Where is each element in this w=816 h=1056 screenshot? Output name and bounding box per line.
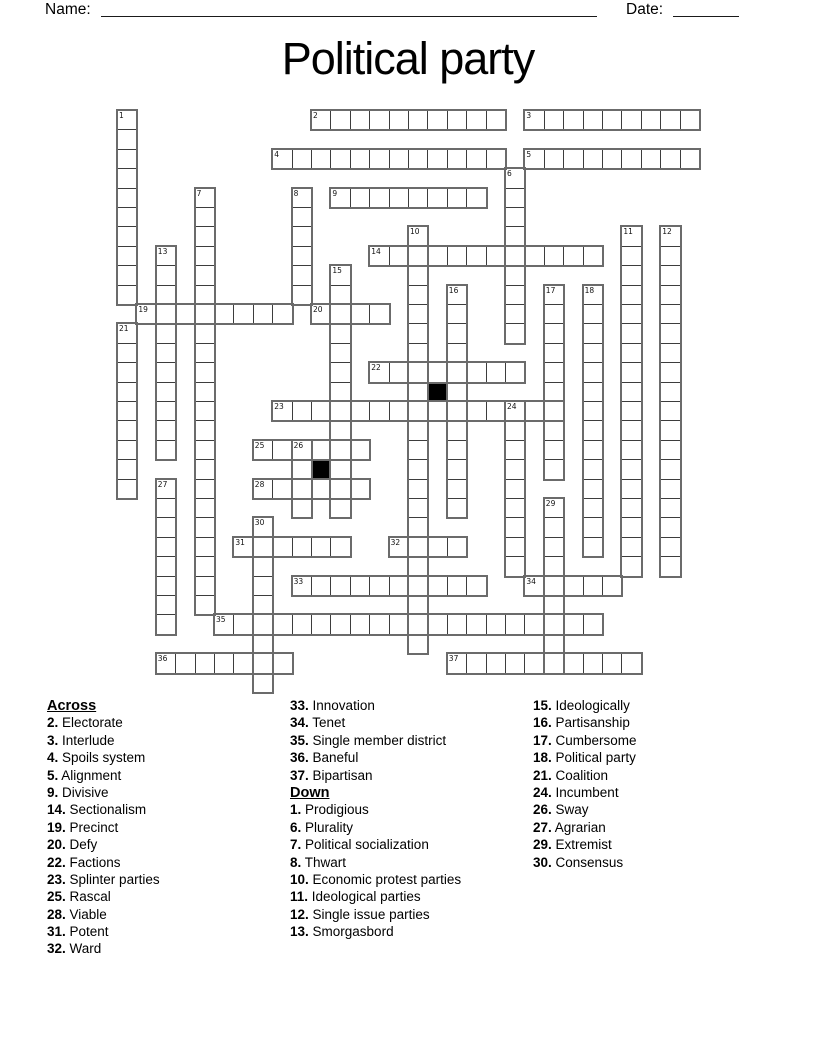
grid-cell[interactable] xyxy=(505,653,525,673)
grid-cell[interactable] xyxy=(408,479,428,499)
grid-cell[interactable] xyxy=(253,673,273,693)
grid-cell[interactable] xyxy=(660,265,680,285)
grid-cell[interactable] xyxy=(544,576,564,596)
grid-cell[interactable] xyxy=(660,149,680,169)
grid-cell[interactable] xyxy=(621,401,641,421)
grid-cell[interactable] xyxy=(350,479,370,499)
grid-cell[interactable] xyxy=(408,149,428,169)
grid-cell[interactable] xyxy=(195,556,215,576)
grid-cell[interactable] xyxy=(156,401,176,421)
grid-cell[interactable] xyxy=(292,265,312,285)
grid-cell[interactable] xyxy=(505,614,525,634)
grid-cell[interactable] xyxy=(292,149,312,169)
grid-cell[interactable] xyxy=(350,576,370,596)
grid-cell[interactable] xyxy=(195,343,215,363)
grid-cell[interactable] xyxy=(369,110,389,130)
grid-cell[interactable] xyxy=(292,246,312,266)
grid-cell[interactable] xyxy=(330,401,350,421)
grid-cell[interactable] xyxy=(195,401,215,421)
grid-cell[interactable] xyxy=(369,576,389,596)
grid-cell[interactable] xyxy=(195,595,215,615)
grid-cell[interactable] xyxy=(621,382,641,402)
grid-cell[interactable] xyxy=(660,537,680,557)
grid-cell[interactable] xyxy=(621,246,641,266)
grid-cell[interactable] xyxy=(486,401,506,421)
grid-cell[interactable] xyxy=(408,459,428,479)
grid-cell[interactable] xyxy=(292,498,312,518)
grid-cell[interactable] xyxy=(505,285,525,305)
grid-cell[interactable] xyxy=(447,459,467,479)
grid-cell[interactable] xyxy=(427,614,447,634)
grid-cell[interactable] xyxy=(544,149,564,169)
grid-cell[interactable] xyxy=(660,285,680,305)
grid-cell[interactable] xyxy=(408,634,428,654)
grid-cell[interactable] xyxy=(486,362,506,382)
grid-cell[interactable] xyxy=(369,401,389,421)
grid-cell[interactable] xyxy=(621,556,641,576)
grid-cell[interactable] xyxy=(272,614,292,634)
grid-cell[interactable] xyxy=(330,110,350,130)
grid-cell[interactable] xyxy=(117,285,137,305)
grid-cell[interactable] xyxy=(544,110,564,130)
grid-cell[interactable] xyxy=(330,459,350,479)
grid-cell[interactable] xyxy=(466,576,486,596)
grid-cell[interactable] xyxy=(117,207,137,227)
grid-cell[interactable] xyxy=(544,517,564,537)
grid-cell[interactable] xyxy=(408,595,428,615)
grid-cell[interactable] xyxy=(621,420,641,440)
grid-cell[interactable] xyxy=(466,246,486,266)
grid-cell[interactable] xyxy=(292,285,312,305)
grid-cell[interactable] xyxy=(505,207,525,227)
grid-cell[interactable] xyxy=(195,440,215,460)
grid-cell[interactable] xyxy=(350,614,370,634)
grid-cell[interactable] xyxy=(660,517,680,537)
grid-cell[interactable] xyxy=(311,401,331,421)
grid-cell[interactable] xyxy=(214,304,234,324)
grid-cell[interactable] xyxy=(330,285,350,305)
grid-cell[interactable] xyxy=(486,614,506,634)
grid-cell[interactable] xyxy=(466,614,486,634)
grid-cell[interactable] xyxy=(602,576,622,596)
grid-cell[interactable] xyxy=(117,479,137,499)
grid-cell[interactable] xyxy=(427,188,447,208)
grid-cell[interactable] xyxy=(524,614,544,634)
grid-cell[interactable] xyxy=(389,401,409,421)
grid-cell[interactable] xyxy=(505,246,525,266)
grid-cell[interactable] xyxy=(408,498,428,518)
grid-cell[interactable] xyxy=(408,614,428,634)
grid-cell[interactable] xyxy=(621,343,641,363)
grid-cell[interactable] xyxy=(292,479,312,499)
grid-cell[interactable] xyxy=(544,246,564,266)
grid-cell[interactable] xyxy=(544,459,564,479)
grid-cell[interactable] xyxy=(156,323,176,343)
grid-cell[interactable] xyxy=(447,188,467,208)
grid-cell[interactable] xyxy=(369,149,389,169)
grid-cell[interactable] xyxy=(447,440,467,460)
grid-cell[interactable] xyxy=(427,537,447,557)
grid-cell[interactable] xyxy=(583,304,603,324)
grid-cell[interactable] xyxy=(427,246,447,266)
grid-cell[interactable] xyxy=(621,479,641,499)
grid-cell[interactable] xyxy=(330,537,350,557)
grid-cell[interactable] xyxy=(330,304,350,324)
grid-cell[interactable] xyxy=(117,265,137,285)
grid-cell[interactable] xyxy=(195,226,215,246)
grid-cell[interactable] xyxy=(330,614,350,634)
grid-cell[interactable] xyxy=(583,149,603,169)
grid-cell[interactable] xyxy=(621,323,641,343)
grid-cell[interactable] xyxy=(195,498,215,518)
grid-cell[interactable] xyxy=(621,653,641,673)
grid-cell[interactable] xyxy=(505,537,525,557)
grid-cell[interactable] xyxy=(311,440,331,460)
grid-cell[interactable] xyxy=(233,653,253,673)
grid-cell[interactable] xyxy=(544,537,564,557)
grid-cell[interactable] xyxy=(583,653,603,673)
grid-cell[interactable] xyxy=(466,149,486,169)
grid-cell[interactable] xyxy=(330,479,350,499)
grid-cell[interactable] xyxy=(544,614,564,634)
grid-cell[interactable] xyxy=(660,382,680,402)
grid-cell[interactable] xyxy=(544,362,564,382)
grid-cell[interactable] xyxy=(583,479,603,499)
grid-cell[interactable] xyxy=(156,614,176,634)
grid-cell[interactable] xyxy=(195,323,215,343)
grid-cell[interactable] xyxy=(408,265,428,285)
grid-cell[interactable] xyxy=(330,440,350,460)
grid-cell[interactable] xyxy=(350,110,370,130)
grid-cell[interactable] xyxy=(156,556,176,576)
grid-cell[interactable] xyxy=(583,382,603,402)
grid-cell[interactable] xyxy=(195,537,215,557)
grid-cell[interactable] xyxy=(660,323,680,343)
grid-cell[interactable] xyxy=(350,401,370,421)
grid-cell[interactable] xyxy=(505,226,525,246)
grid-cell[interactable] xyxy=(544,304,564,324)
grid-cell[interactable] xyxy=(195,576,215,596)
grid-cell[interactable] xyxy=(583,614,603,634)
grid-cell[interactable] xyxy=(505,459,525,479)
grid-cell[interactable] xyxy=(544,343,564,363)
grid-cell[interactable] xyxy=(253,634,273,654)
grid-cell[interactable] xyxy=(641,110,661,130)
grid-cell[interactable] xyxy=(563,110,583,130)
grid-cell[interactable] xyxy=(156,382,176,402)
grid-cell[interactable] xyxy=(505,479,525,499)
grid-cell[interactable] xyxy=(117,362,137,382)
grid-cell[interactable] xyxy=(117,168,137,188)
grid-cell[interactable] xyxy=(447,479,467,499)
grid-cell[interactable] xyxy=(583,110,603,130)
grid-cell[interactable] xyxy=(621,110,641,130)
grid-cell[interactable] xyxy=(408,362,428,382)
grid-cell[interactable] xyxy=(563,246,583,266)
grid-cell[interactable] xyxy=(156,343,176,363)
grid-cell[interactable] xyxy=(195,362,215,382)
grid-cell[interactable] xyxy=(524,401,544,421)
grid-cell[interactable] xyxy=(486,246,506,266)
grid-cell[interactable] xyxy=(117,343,137,363)
grid-cell[interactable] xyxy=(330,498,350,518)
grid-cell[interactable] xyxy=(408,304,428,324)
grid-cell[interactable] xyxy=(311,537,331,557)
grid-cell[interactable] xyxy=(505,304,525,324)
grid-cell[interactable] xyxy=(660,343,680,363)
grid-cell[interactable] xyxy=(466,110,486,130)
grid-cell[interactable] xyxy=(195,246,215,266)
grid-cell[interactable] xyxy=(621,362,641,382)
grid-cell[interactable] xyxy=(233,614,253,634)
name-fill-line[interactable] xyxy=(101,0,597,17)
grid-cell[interactable] xyxy=(505,420,525,440)
grid-cell[interactable] xyxy=(311,149,331,169)
grid-cell[interactable] xyxy=(602,653,622,673)
grid-cell[interactable] xyxy=(505,440,525,460)
grid-cell[interactable] xyxy=(292,226,312,246)
grid-cell[interactable] xyxy=(602,110,622,130)
grid-cell[interactable] xyxy=(447,614,467,634)
grid-cell[interactable] xyxy=(544,440,564,460)
grid-cell[interactable] xyxy=(447,537,467,557)
grid-cell[interactable] xyxy=(195,517,215,537)
grid-cell[interactable] xyxy=(583,537,603,557)
grid-cell[interactable] xyxy=(544,653,564,673)
grid-cell[interactable] xyxy=(408,576,428,596)
grid-cell[interactable] xyxy=(253,595,273,615)
grid-cell[interactable] xyxy=(583,576,603,596)
grid-cell[interactable] xyxy=(389,110,409,130)
grid-cell[interactable] xyxy=(389,246,409,266)
grid-cell[interactable] xyxy=(156,498,176,518)
grid-cell[interactable] xyxy=(117,459,137,479)
grid-cell[interactable] xyxy=(117,129,137,149)
grid-cell[interactable] xyxy=(350,304,370,324)
grid-cell[interactable] xyxy=(544,401,564,421)
grid-cell[interactable] xyxy=(447,343,467,363)
grid-cell[interactable] xyxy=(466,653,486,673)
grid-cell[interactable] xyxy=(505,323,525,343)
grid-cell[interactable] xyxy=(563,149,583,169)
grid-cell[interactable] xyxy=(117,149,137,169)
grid-cell[interactable] xyxy=(544,634,564,654)
grid-cell[interactable] xyxy=(660,479,680,499)
grid-cell[interactable] xyxy=(253,653,273,673)
grid-cell[interactable] xyxy=(272,653,292,673)
grid-cell[interactable] xyxy=(583,440,603,460)
grid-cell[interactable] xyxy=(369,188,389,208)
grid-cell[interactable] xyxy=(272,537,292,557)
grid-cell[interactable] xyxy=(447,304,467,324)
grid-cell[interactable] xyxy=(408,110,428,130)
grid-cell[interactable] xyxy=(253,304,273,324)
grid-cell[interactable] xyxy=(660,420,680,440)
grid-cell[interactable] xyxy=(621,304,641,324)
grid-cell[interactable] xyxy=(505,498,525,518)
grid-cell[interactable] xyxy=(544,323,564,343)
grid-cell[interactable] xyxy=(660,556,680,576)
grid-cell[interactable] xyxy=(660,440,680,460)
grid-cell[interactable] xyxy=(311,479,331,499)
grid-cell[interactable] xyxy=(408,246,428,266)
grid-cell[interactable] xyxy=(660,304,680,324)
grid-cell[interactable] xyxy=(195,653,215,673)
grid-cell[interactable] xyxy=(195,207,215,227)
grid-cell[interactable] xyxy=(117,401,137,421)
grid-cell[interactable] xyxy=(389,576,409,596)
grid-cell[interactable] xyxy=(544,595,564,615)
grid-cell[interactable] xyxy=(369,304,389,324)
grid-cell[interactable] xyxy=(389,362,409,382)
grid-cell[interactable] xyxy=(621,285,641,305)
grid-cell[interactable] xyxy=(602,149,622,169)
grid-cell[interactable] xyxy=(447,149,467,169)
grid-cell[interactable] xyxy=(466,401,486,421)
grid-cell[interactable] xyxy=(272,479,292,499)
grid-cell[interactable] xyxy=(621,537,641,557)
grid-cell[interactable] xyxy=(195,285,215,305)
grid-cell[interactable] xyxy=(156,420,176,440)
grid-cell[interactable] xyxy=(330,149,350,169)
grid-cell[interactable] xyxy=(408,440,428,460)
grid-cell[interactable] xyxy=(447,362,467,382)
grid-cell[interactable] xyxy=(195,382,215,402)
grid-cell[interactable] xyxy=(330,362,350,382)
grid-cell[interactable] xyxy=(389,149,409,169)
grid-cell[interactable] xyxy=(117,246,137,266)
grid-cell[interactable] xyxy=(583,401,603,421)
grid-cell[interactable] xyxy=(621,149,641,169)
grid-cell[interactable] xyxy=(621,440,641,460)
grid-cell[interactable] xyxy=(389,188,409,208)
grid-cell[interactable] xyxy=(253,576,273,596)
grid-cell[interactable] xyxy=(680,110,700,130)
grid-cell[interactable] xyxy=(583,323,603,343)
grid-cell[interactable] xyxy=(330,323,350,343)
grid-cell[interactable] xyxy=(544,556,564,576)
grid-cell[interactable] xyxy=(621,265,641,285)
grid-cell[interactable] xyxy=(156,362,176,382)
grid-cell[interactable] xyxy=(447,382,467,402)
date-fill-line[interactable] xyxy=(673,0,739,17)
grid-cell[interactable] xyxy=(195,479,215,499)
grid-cell[interactable] xyxy=(583,517,603,537)
grid-cell[interactable] xyxy=(427,401,447,421)
grid-cell[interactable] xyxy=(330,343,350,363)
grid-cell[interactable] xyxy=(195,420,215,440)
grid-cell[interactable] xyxy=(408,323,428,343)
grid-cell[interactable] xyxy=(524,653,544,673)
grid-cell[interactable] xyxy=(311,576,331,596)
grid-cell[interactable] xyxy=(156,517,176,537)
grid-cell[interactable] xyxy=(486,149,506,169)
grid-cell[interactable] xyxy=(272,440,292,460)
grid-cell[interactable] xyxy=(117,440,137,460)
grid-cell[interactable] xyxy=(156,595,176,615)
grid-cell[interactable] xyxy=(660,459,680,479)
grid-cell[interactable] xyxy=(621,459,641,479)
grid-cell[interactable] xyxy=(214,653,234,673)
grid-cell[interactable] xyxy=(195,304,215,324)
grid-cell[interactable] xyxy=(447,498,467,518)
grid-cell[interactable] xyxy=(292,537,312,557)
grid-cell[interactable] xyxy=(583,246,603,266)
grid-cell[interactable] xyxy=(117,226,137,246)
grid-cell[interactable] xyxy=(447,420,467,440)
grid-cell[interactable] xyxy=(408,285,428,305)
grid-cell[interactable] xyxy=(311,614,331,634)
grid-cell[interactable] xyxy=(369,614,389,634)
grid-cell[interactable] xyxy=(408,537,428,557)
grid-cell[interactable] xyxy=(524,246,544,266)
grid-cell[interactable] xyxy=(330,576,350,596)
grid-cell[interactable] xyxy=(292,614,312,634)
grid-cell[interactable] xyxy=(486,110,506,130)
grid-cell[interactable] xyxy=(253,537,273,557)
grid-cell[interactable] xyxy=(583,343,603,363)
grid-cell[interactable] xyxy=(660,362,680,382)
grid-cell[interactable] xyxy=(447,401,467,421)
grid-cell[interactable] xyxy=(641,149,661,169)
grid-cell[interactable] xyxy=(621,517,641,537)
grid-cell[interactable] xyxy=(660,246,680,266)
grid-cell[interactable] xyxy=(117,382,137,402)
grid-cell[interactable] xyxy=(583,420,603,440)
grid-cell[interactable] xyxy=(583,498,603,518)
grid-cell[interactable] xyxy=(660,498,680,518)
grid-cell[interactable] xyxy=(292,401,312,421)
grid-cell[interactable] xyxy=(156,304,176,324)
grid-cell[interactable] xyxy=(408,188,428,208)
grid-cell[interactable] xyxy=(544,382,564,402)
grid-cell[interactable] xyxy=(292,459,312,479)
grid-cell[interactable] xyxy=(117,420,137,440)
grid-cell[interactable] xyxy=(660,401,680,421)
grid-cell[interactable] xyxy=(350,188,370,208)
grid-cell[interactable] xyxy=(583,459,603,479)
grid-cell[interactable] xyxy=(563,653,583,673)
grid-cell[interactable] xyxy=(563,614,583,634)
grid-cell[interactable] xyxy=(408,401,428,421)
grid-cell[interactable] xyxy=(583,362,603,382)
grid-cell[interactable] xyxy=(408,517,428,537)
grid-cell[interactable] xyxy=(408,382,428,402)
grid-cell[interactable] xyxy=(195,265,215,285)
grid-cell[interactable] xyxy=(505,517,525,537)
grid-cell[interactable] xyxy=(156,285,176,305)
grid-cell[interactable] xyxy=(427,362,447,382)
grid-cell[interactable] xyxy=(350,440,370,460)
grid-cell[interactable] xyxy=(408,343,428,363)
grid-cell[interactable] xyxy=(253,556,273,576)
grid-cell[interactable] xyxy=(427,110,447,130)
grid-cell[interactable] xyxy=(233,304,253,324)
grid-cell[interactable] xyxy=(175,304,195,324)
grid-cell[interactable] xyxy=(505,188,525,208)
grid-cell[interactable] xyxy=(156,440,176,460)
grid-cell[interactable] xyxy=(175,653,195,673)
grid-cell[interactable] xyxy=(544,420,564,440)
grid-cell[interactable] xyxy=(350,149,370,169)
grid-cell[interactable] xyxy=(389,614,409,634)
grid-cell[interactable] xyxy=(427,576,447,596)
grid-cell[interactable] xyxy=(408,420,428,440)
grid-cell[interactable] xyxy=(253,614,273,634)
grid-cell[interactable] xyxy=(447,576,467,596)
grid-cell[interactable] xyxy=(156,576,176,596)
grid-cell[interactable] xyxy=(505,362,525,382)
